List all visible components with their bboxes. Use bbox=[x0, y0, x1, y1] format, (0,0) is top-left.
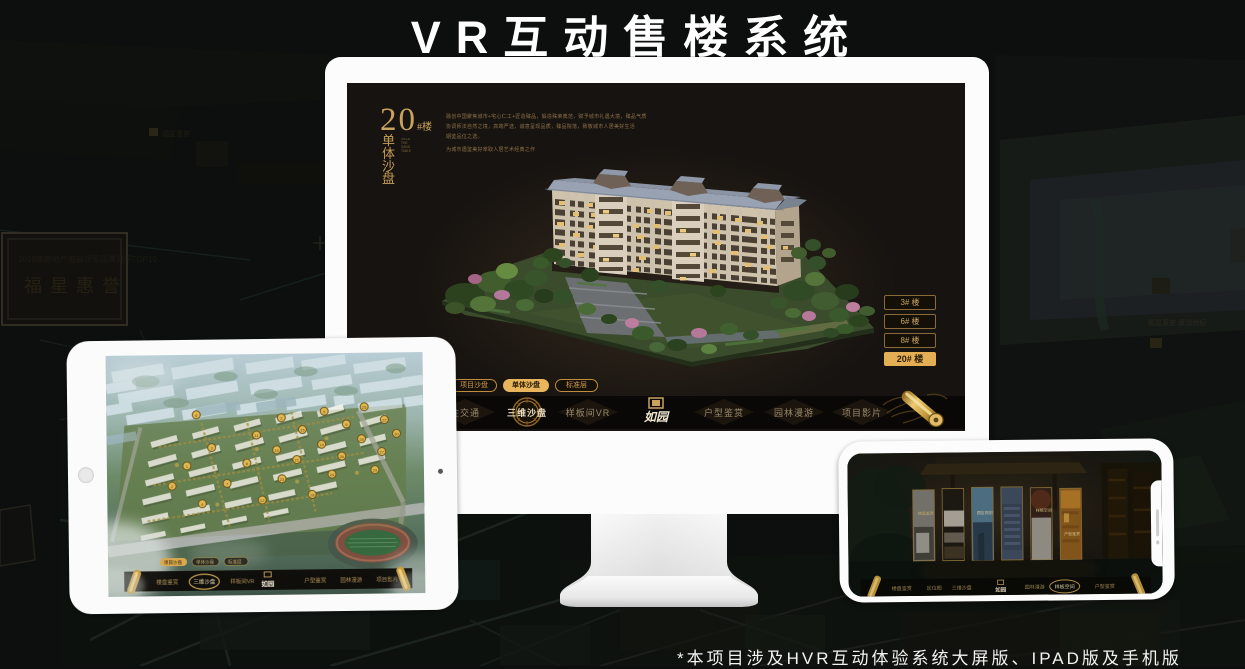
svg-text:户型鉴赏: 户型鉴赏 bbox=[304, 576, 327, 584]
svg-text:园林漫游: 园林漫游 bbox=[774, 407, 814, 418]
svg-text:样板间VR: 样板间VR bbox=[566, 407, 611, 418]
svg-text:楼盘鉴赏: 楼盘鉴赏 bbox=[156, 578, 179, 586]
svg-text:三维沙盘: 三维沙盘 bbox=[193, 578, 216, 586]
svg-text:三维沙盘: 三维沙盘 bbox=[507, 407, 547, 418]
svg-text:如园: 如园 bbox=[261, 579, 275, 588]
svg-text:园林漫游: 园林漫游 bbox=[340, 576, 363, 584]
svg-text:15: 15 bbox=[300, 427, 305, 432]
svg-text:如园: 如园 bbox=[644, 410, 670, 424]
svg-text:福星惠誉: 福星惠誉 bbox=[24, 276, 128, 296]
svg-text:福星惠誉·厦璟世纪: 福星惠誉·厦璟世纪 bbox=[1148, 318, 1206, 327]
svg-text:户型鉴赏: 户型鉴赏 bbox=[704, 407, 744, 418]
svg-text:2018年房地产电商领军品牌测评TOP10: 2018年房地产电商领军品牌测评TOP10 bbox=[18, 254, 158, 264]
svg-text:项目影片: 项目影片 bbox=[842, 407, 882, 418]
svg-text:24: 24 bbox=[330, 472, 335, 477]
svg-text:福星惠誉: 福星惠誉 bbox=[162, 129, 190, 138]
